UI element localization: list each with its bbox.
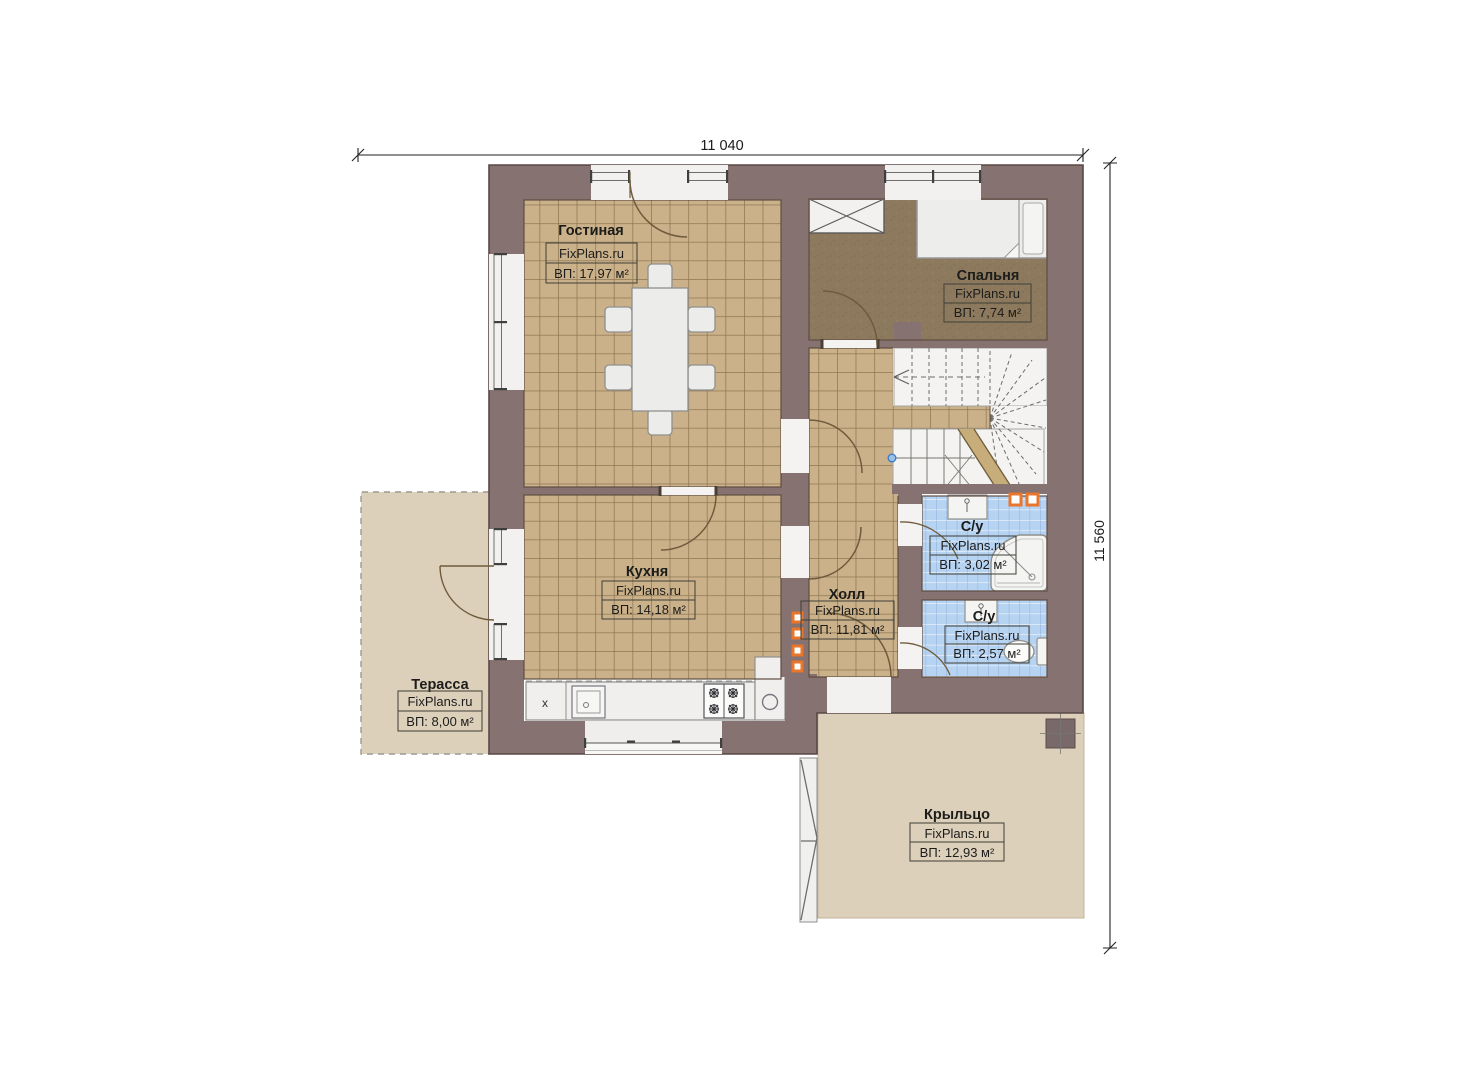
svg-text:С/у: С/у [961, 519, 984, 535]
svg-text:ВП: 12,93 м²: ВП: 12,93 м² [920, 845, 995, 860]
svg-text:FixPlans.ru: FixPlans.ru [924, 826, 989, 841]
svg-text:Спальня: Спальня [957, 268, 1020, 284]
svg-text:Крыльцо: Крыльцо [924, 807, 990, 823]
svg-text:11 560: 11 560 [1091, 520, 1107, 562]
svg-text:FixPlans.ru: FixPlans.ru [955, 286, 1020, 301]
svg-text:ВП: 2,57 м²: ВП: 2,57 м² [953, 646, 1021, 661]
svg-text:FixPlans.ru: FixPlans.ru [407, 694, 472, 709]
svg-text:ВП: 14,18 м²: ВП: 14,18 м² [611, 602, 686, 617]
svg-text:FixPlans.ru: FixPlans.ru [559, 246, 624, 261]
svg-text:FixPlans.ru: FixPlans.ru [616, 583, 681, 598]
svg-text:ВП: 17,97 м²: ВП: 17,97 м² [554, 266, 629, 281]
svg-text:Гостиная: Гостиная [558, 223, 624, 239]
svg-text:x: x [542, 696, 548, 710]
svg-text:ВП: 11,81 м²: ВП: 11,81 м² [811, 622, 885, 637]
svg-text:Кухня: Кухня [626, 564, 668, 580]
svg-text:С/у: С/у [973, 609, 996, 625]
svg-text:FixPlans.ru: FixPlans.ru [954, 628, 1019, 643]
svg-text:FixPlans.ru: FixPlans.ru [940, 538, 1005, 553]
svg-text:ВП: 3,02 м²: ВП: 3,02 м² [939, 557, 1007, 572]
svg-text:FixPlans.ru: FixPlans.ru [815, 603, 880, 618]
svg-text:ВП: 8,00 м²: ВП: 8,00 м² [406, 714, 474, 729]
svg-text:11 040: 11 040 [700, 138, 743, 154]
svg-text:ВП: 7,74 м²: ВП: 7,74 м² [954, 305, 1022, 320]
